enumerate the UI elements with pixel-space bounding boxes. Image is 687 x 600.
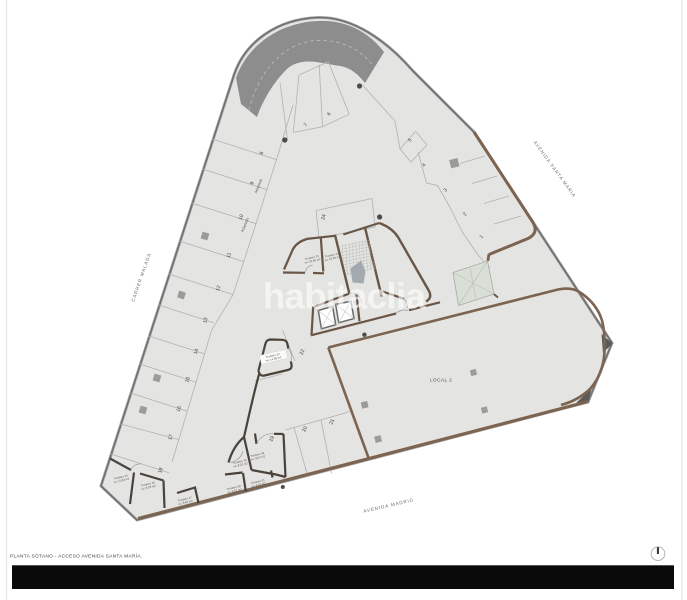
svg-text:AVENIDA SANTA MARIA: AVENIDA SANTA MARIA xyxy=(533,140,577,198)
svg-text:PLANTA SÓTANO - ACCESO AVENIDA: PLANTA SÓTANO - ACCESO AVENIDA SANTA MAR… xyxy=(10,553,143,560)
svg-text:CARRER MALAGA: CARRER MALAGA xyxy=(130,252,152,302)
svg-text:habitaclia: habitaclia xyxy=(263,276,427,317)
svg-text:LOCAL 2: LOCAL 2 xyxy=(430,378,452,384)
svg-text:AVENIDA MADRID: AVENIDA MADRID xyxy=(363,497,414,513)
